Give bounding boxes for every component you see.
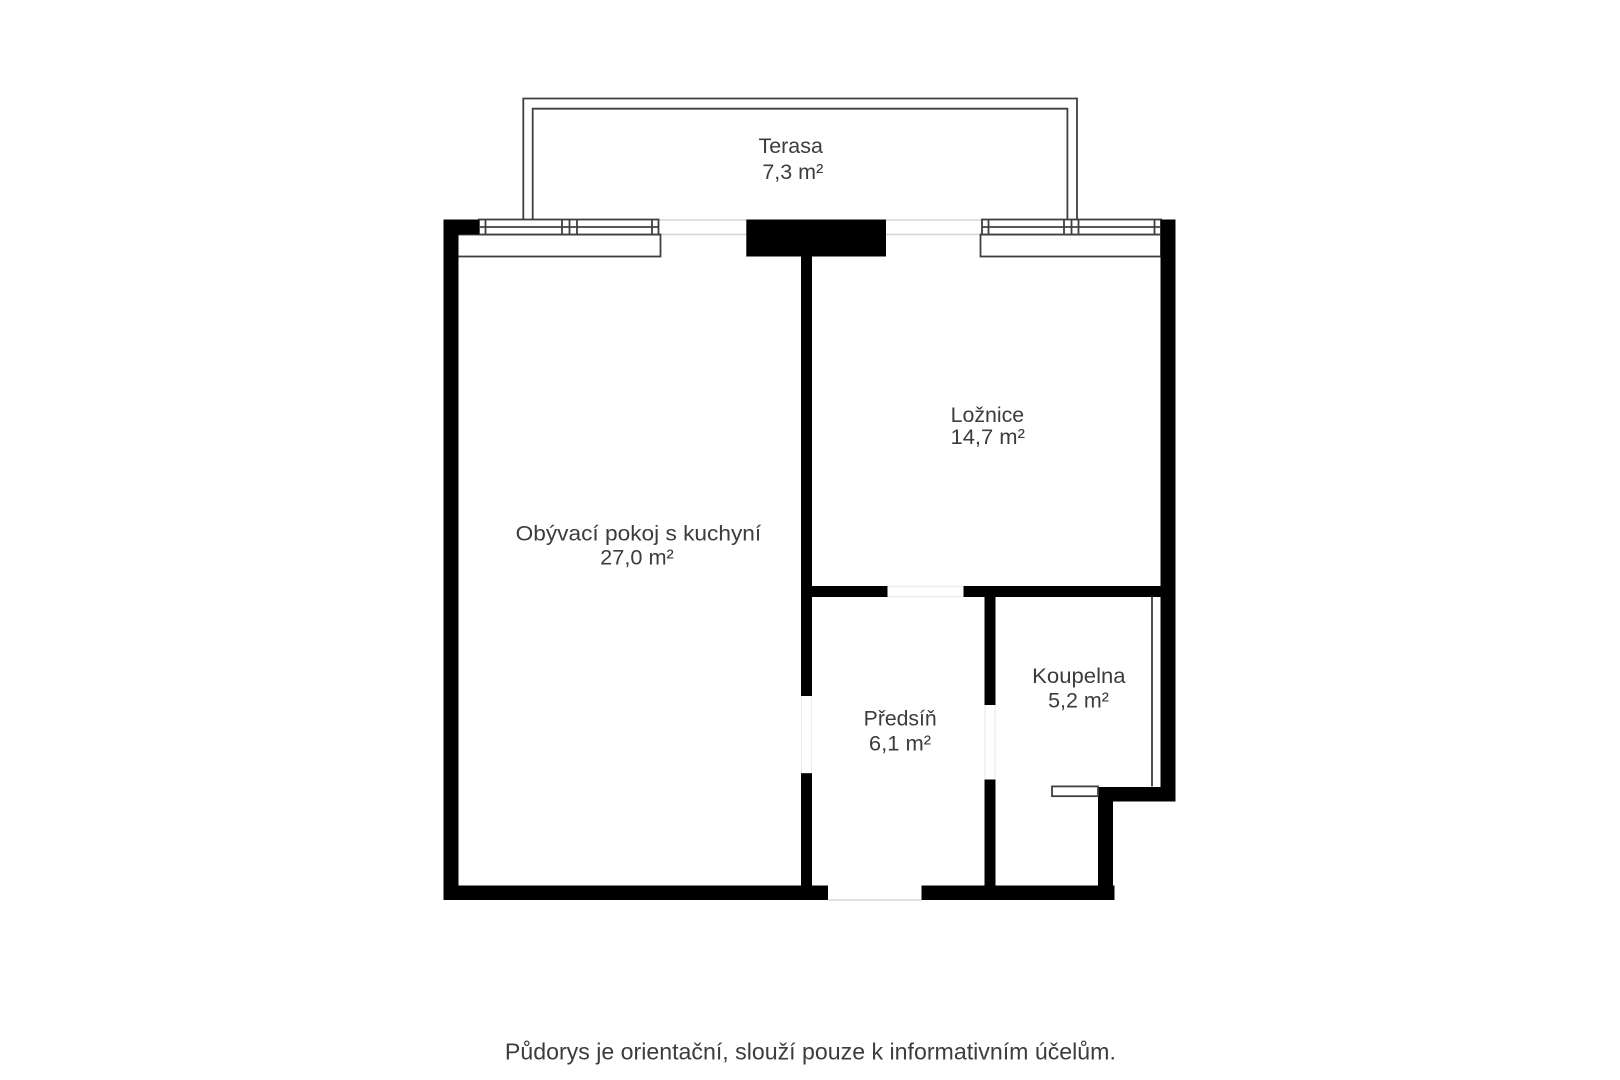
svg-text:7,3 m²: 7,3 m² (762, 161, 823, 184)
svg-text:Ložnice: Ložnice (951, 404, 1025, 427)
svg-text:Koupelna: Koupelna (1032, 665, 1126, 688)
svg-text:Půdorys je orientační, slouží: Půdorys je orientační, slouží pouze k in… (505, 1039, 1116, 1065)
svg-text:27,0 m²: 27,0 m² (600, 547, 674, 570)
svg-text:Obývací pokoj s kuchyní: Obývací pokoj s kuchyní (516, 523, 762, 546)
svg-text:5,2 m²: 5,2 m² (1048, 689, 1109, 712)
svg-text:6,1 m²: 6,1 m² (869, 733, 931, 756)
svg-text:Terasa: Terasa (759, 135, 824, 158)
svg-text:14,7 m²: 14,7 m² (951, 426, 1025, 449)
svg-text:Předsíň: Předsíň (864, 707, 937, 730)
